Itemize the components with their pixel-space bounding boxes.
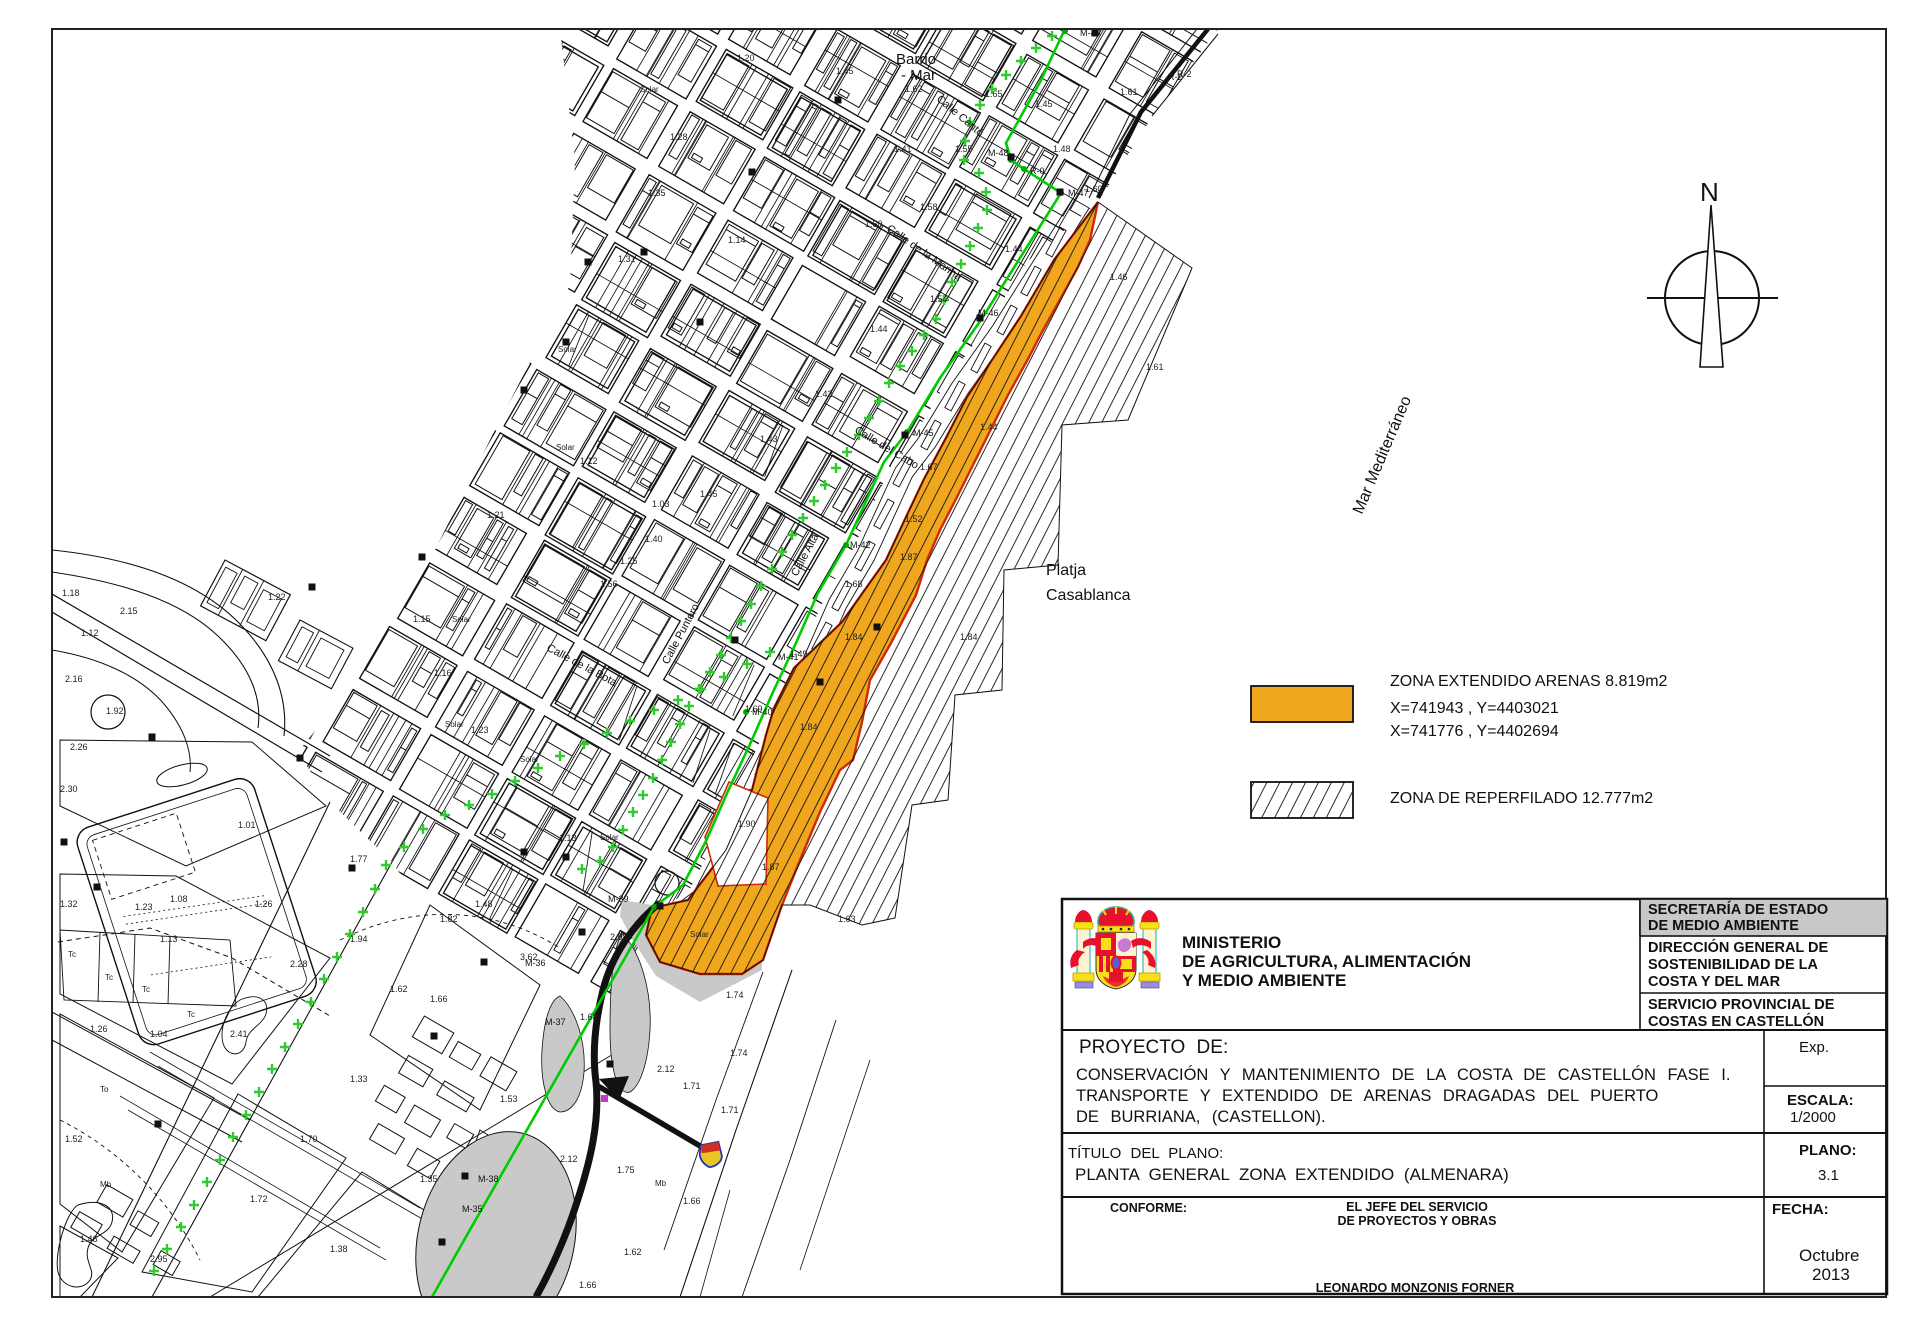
svg-text:3.1: 3.1: [1818, 1167, 1839, 1184]
svg-text:DIRECCIÓN GENERAL DE: DIRECCIÓN GENERAL DE: [1648, 938, 1829, 956]
svg-text:1.67: 1.67: [920, 462, 938, 472]
svg-text:1.43: 1.43: [760, 434, 778, 444]
svg-text:DE BURRIANA, (CASTELLON).: DE BURRIANA, (CASTELLON).: [1076, 1108, 1326, 1126]
svg-text:Mb: Mb: [655, 1179, 667, 1188]
svg-text:1.74: 1.74: [726, 990, 744, 1000]
svg-text:1.62: 1.62: [905, 84, 923, 94]
svg-text:Solar: Solar: [600, 833, 619, 842]
svg-text:PROYECTO DE:: PROYECTO DE:: [1079, 1037, 1228, 1058]
svg-text:- Mar: - Mar: [901, 67, 936, 84]
svg-text:Solar: Solar: [558, 345, 577, 354]
svg-text:Platja: Platja: [1046, 562, 1086, 579]
svg-text:1.13: 1.13: [559, 833, 577, 843]
svg-text:1.87: 1.87: [900, 552, 918, 562]
svg-text:1.46: 1.46: [1110, 272, 1128, 282]
svg-text:1.84: 1.84: [800, 722, 818, 732]
svg-text:TRANSPORTE Y EXTENDIDO DE AREN: TRANSPORTE Y EXTENDIDO DE ARENAS DRAGADA…: [1076, 1087, 1658, 1105]
svg-text:X=741943 , Y=4403021: X=741943 , Y=4403021: [1390, 700, 1559, 717]
svg-text:ESCALA:: ESCALA:: [1787, 1092, 1854, 1109]
svg-text:1.94: 1.94: [350, 934, 368, 944]
svg-text:1.84: 1.84: [845, 632, 863, 642]
svg-text:1.82: 1.82: [440, 914, 458, 924]
svg-text:DE MEDIO AMBIENTE: DE MEDIO AMBIENTE: [1648, 918, 1799, 934]
svg-text:1.72: 1.72: [250, 1194, 268, 1204]
svg-text:COSTA Y DEL MAR: COSTA Y DEL MAR: [1648, 974, 1781, 990]
svg-text:1.45: 1.45: [700, 489, 718, 499]
svg-text:1.66: 1.66: [430, 994, 448, 1004]
svg-text:PLANO:: PLANO:: [1799, 1142, 1857, 1159]
svg-text:EL JEFE DEL SERVICIO: EL JEFE DEL SERVICIO: [1346, 1200, 1488, 1214]
svg-text:N: N: [1700, 177, 1719, 207]
svg-text:1.61: 1.61: [1120, 87, 1138, 97]
svg-text:1.32: 1.32: [60, 899, 78, 909]
svg-text:1.33: 1.33: [350, 1074, 368, 1084]
svg-text:1.12: 1.12: [580, 456, 598, 466]
svg-text:1.87: 1.87: [762, 862, 780, 872]
svg-text:1.13: 1.13: [160, 934, 178, 944]
svg-text:R-2: R-2: [1168, 72, 1183, 82]
svg-text:R-0: R-0: [1030, 166, 1045, 176]
svg-text:2.12: 2.12: [560, 1154, 578, 1164]
svg-text:1.68: 1.68: [845, 579, 863, 589]
svg-text:FECHA:: FECHA:: [1772, 1201, 1829, 1218]
svg-text:M-36: M-36: [525, 958, 546, 968]
svg-text:1.75: 1.75: [617, 1165, 635, 1175]
svg-text:1.15: 1.15: [413, 614, 431, 624]
svg-text:1.23: 1.23: [135, 902, 153, 912]
svg-text:M-37: M-37: [545, 1017, 566, 1027]
svg-text:1.63: 1.63: [838, 914, 856, 924]
svg-text:Solar: Solar: [520, 755, 539, 764]
svg-text:M-45: M-45: [913, 428, 934, 438]
svg-text:1.84: 1.84: [960, 632, 978, 642]
svg-text:1.16: 1.16: [434, 668, 452, 678]
svg-text:Mb: Mb: [100, 1180, 112, 1189]
svg-text:Solar: Solar: [690, 930, 709, 939]
svg-text:1.71: 1.71: [721, 1105, 739, 1115]
svg-text:M-41: M-41: [778, 652, 799, 662]
svg-text:1.48: 1.48: [475, 899, 493, 909]
svg-text:1.22: 1.22: [268, 592, 286, 602]
svg-text:2.95: 2.95: [150, 1254, 168, 1264]
svg-text:1.23: 1.23: [471, 725, 489, 735]
svg-text:M-35: M-35: [462, 1204, 483, 1214]
svg-text:1.25: 1.25: [620, 556, 638, 566]
svg-text:1.45: 1.45: [1035, 99, 1053, 109]
svg-text:Y MEDIO AMBIENTE: Y MEDIO AMBIENTE: [1182, 971, 1346, 990]
svg-text:1.42: 1.42: [815, 389, 833, 399]
svg-text:1.62: 1.62: [390, 984, 408, 994]
svg-text:Tc: Tc: [187, 1010, 195, 1019]
svg-text:ZONA EXTENDIDO ARENAS 8.819m2: ZONA EXTENDIDO ARENAS 8.819m2: [1390, 673, 1668, 690]
svg-text:1.44: 1.44: [980, 422, 998, 432]
svg-text:1.21: 1.21: [487, 510, 505, 520]
svg-text:1.53: 1.53: [500, 1094, 518, 1104]
svg-text:1.71: 1.71: [683, 1081, 701, 1091]
svg-text:2.93: 2.93: [610, 932, 628, 942]
svg-text:M-42: M-42: [850, 540, 871, 550]
svg-text:1.65: 1.65: [985, 89, 1003, 99]
svg-text:1.35: 1.35: [420, 1174, 438, 1184]
svg-text:2.15: 2.15: [120, 606, 138, 616]
svg-text:1.74: 1.74: [730, 1048, 748, 1058]
svg-text:1.61: 1.61: [1146, 362, 1164, 372]
svg-text:M-39: M-39: [608, 894, 629, 904]
svg-text:1.14: 1.14: [728, 235, 746, 245]
svg-text:MINISTERIO: MINISTERIO: [1182, 933, 1281, 952]
svg-text:1.44: 1.44: [870, 324, 888, 334]
svg-text:1.66: 1.66: [683, 1196, 701, 1206]
svg-text:TÍTULO DEL PLANO:: TÍTULO DEL PLANO:: [1068, 1145, 1223, 1162]
svg-text:Solar: Solar: [640, 85, 659, 94]
svg-text:1.50: 1.50: [865, 219, 883, 229]
svg-text:1.26: 1.26: [90, 1024, 108, 1034]
svg-text:Tc: Tc: [105, 973, 113, 982]
svg-text:1.03: 1.03: [652, 499, 670, 509]
svg-text:1.38: 1.38: [330, 1244, 348, 1254]
svg-text:2.16: 2.16: [65, 674, 83, 684]
svg-text:1.35: 1.35: [648, 188, 666, 198]
svg-text:1.48: 1.48: [1053, 144, 1071, 154]
svg-text:2.28: 2.28: [290, 959, 308, 969]
svg-text:1.56: 1.56: [600, 579, 618, 589]
svg-text:1/2000: 1/2000: [1790, 1109, 1836, 1126]
svg-text:1.52: 1.52: [65, 1134, 83, 1144]
svg-text:To: To: [100, 1085, 109, 1094]
svg-text:DE AGRICULTURA, ALIMENTACIÓN: DE AGRICULTURA, ALIMENTACIÓN: [1182, 952, 1471, 971]
svg-text:CONSERVACIÓN Y MANTENIMIENTO D: CONSERVACIÓN Y MANTENIMIENTO DE LA COSTA…: [1076, 1065, 1730, 1084]
svg-text:1.70: 1.70: [300, 1134, 318, 1144]
svg-text:2013: 2013: [1812, 1265, 1850, 1284]
svg-text:Exp.: Exp.: [1799, 1039, 1829, 1056]
svg-text:Solar: Solar: [556, 443, 575, 452]
svg-text:Barrio: Barrio: [896, 51, 936, 68]
svg-text:SECRETARÍA DE ESTADO: SECRETARÍA DE ESTADO: [1648, 901, 1828, 918]
svg-text:Solar: Solar: [452, 615, 471, 624]
svg-text:1.31: 1.31: [618, 254, 636, 264]
svg-text:1.45: 1.45: [836, 66, 854, 76]
svg-text:1.18: 1.18: [62, 588, 80, 598]
svg-text:ZONA DE REPERFILADO 12.777m2: ZONA DE REPERFILADO 12.777m2: [1390, 790, 1653, 807]
svg-text:1.44: 1.44: [1005, 244, 1023, 254]
svg-text:1.66: 1.66: [579, 1280, 597, 1290]
svg-text:1.58: 1.58: [920, 202, 938, 212]
svg-text:1.92: 1.92: [106, 706, 124, 716]
svg-text:Tc: Tc: [68, 950, 76, 959]
svg-text:1.77: 1.77: [350, 854, 368, 864]
svg-text:Octubre: Octubre: [1799, 1246, 1859, 1265]
svg-text:PLANTA GENERAL ZONA EXTENDI: PLANTA GENERAL ZONA EXTENDIDO (ALMENARA): [1075, 1165, 1509, 1184]
svg-text:1.41: 1.41: [894, 144, 912, 154]
svg-text:SERVICIO PROVINCIAL DE: SERVICIO PROVINCIAL DE: [1648, 997, 1835, 1013]
svg-text:2.30: 2.30: [60, 784, 78, 794]
svg-text:1.52: 1.52: [905, 514, 923, 524]
svg-text:CONFORME:: CONFORME:: [1110, 1201, 1187, 1215]
svg-text:1.01: 1.01: [238, 820, 256, 830]
svg-text:1.04: 1.04: [150, 1029, 168, 1039]
svg-text:LEONARDO MONZONIS FORNER: LEONARDO MONZONIS FORNER: [1316, 1281, 1515, 1295]
svg-text:M-48: M-48: [988, 148, 1009, 158]
svg-text:Solar: Solar: [445, 720, 464, 729]
svg-text:Tc: Tc: [142, 985, 150, 994]
svg-text:SOSTENIBILIDAD DE LA: SOSTENIBILIDAD DE LA: [1648, 957, 1819, 973]
svg-text:2.26: 2.26: [70, 742, 88, 752]
svg-text:M-40: M-40: [752, 707, 773, 717]
svg-text:1.62: 1.62: [624, 1247, 642, 1257]
svg-text:COSTAS EN CASTELLÓN: COSTAS EN CASTELLÓN: [1648, 1012, 1824, 1030]
svg-text:2.41: 2.41: [230, 1029, 248, 1039]
svg-text:Casablanca: Casablanca: [1046, 587, 1131, 604]
svg-text:1.55: 1.55: [955, 144, 973, 154]
svg-text:1.40: 1.40: [645, 534, 663, 544]
svg-text:1.26: 1.26: [255, 899, 273, 909]
svg-text:DE PROYECTOS Y OBRAS: DE PROYECTOS Y OBRAS: [1337, 1214, 1496, 1228]
svg-text:2.12: 2.12: [657, 1064, 675, 1074]
svg-text:X=741776 , Y=4402694: X=741776 , Y=4402694: [1390, 723, 1559, 740]
svg-text:M-38: M-38: [478, 1174, 499, 1184]
svg-text:1.08: 1.08: [170, 894, 188, 904]
svg-text:1.28: 1.28: [670, 132, 688, 142]
svg-text:1.90: 1.90: [738, 819, 756, 829]
svg-text:M-47: M-47: [1068, 188, 1089, 198]
svg-text:1.12: 1.12: [81, 628, 99, 638]
svg-text:1.20: 1.20: [737, 53, 755, 63]
svg-text:M-46: M-46: [978, 308, 999, 318]
svg-text:1.46: 1.46: [80, 1234, 98, 1244]
svg-text:1.68: 1.68: [580, 1012, 598, 1022]
svg-text:1.54: 1.54: [930, 294, 948, 304]
